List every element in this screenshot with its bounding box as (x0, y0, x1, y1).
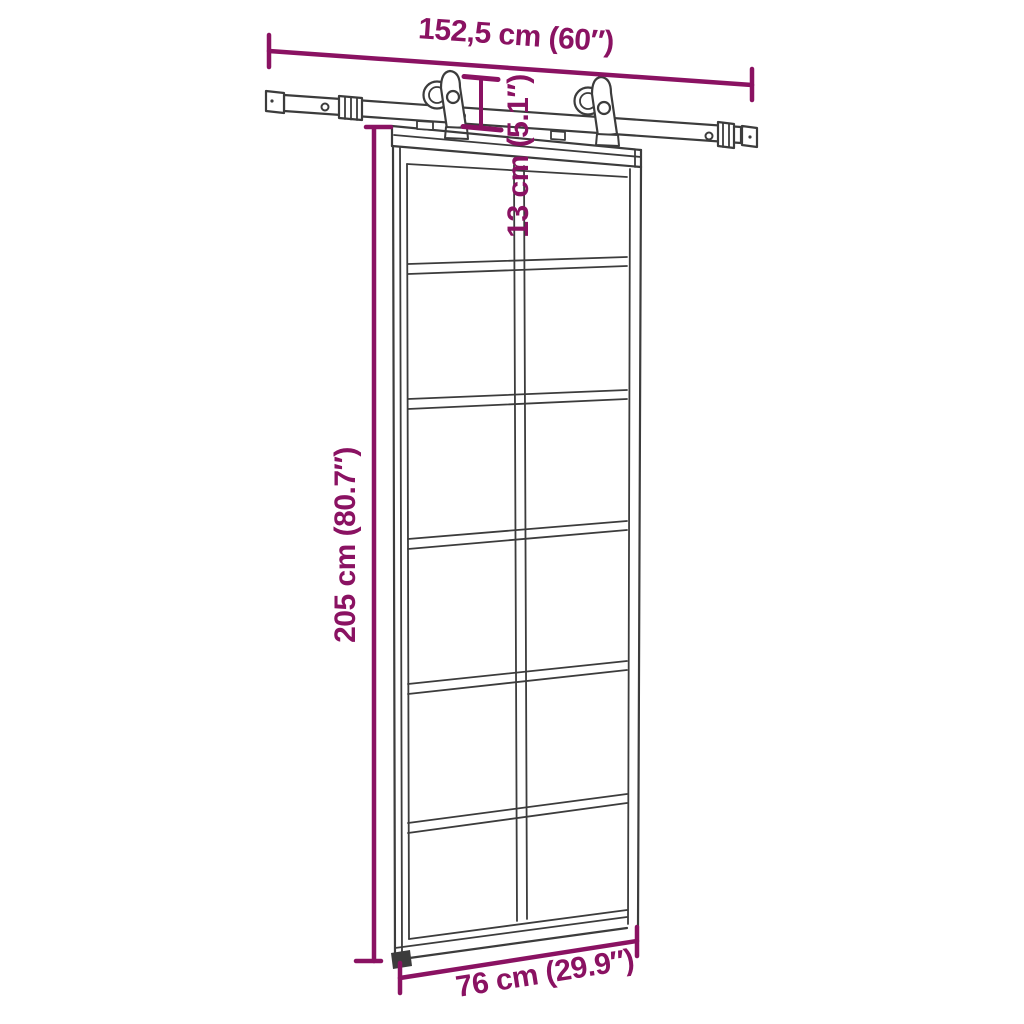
glass-panel-grid (407, 164, 627, 939)
strap-bolt-hole (598, 102, 610, 114)
rail-coupler-left (339, 96, 362, 120)
strap-bolt-hole (447, 91, 459, 103)
dimension-label-door-height: 205 cm (80.7″) (326, 425, 366, 665)
strap-foot (596, 134, 619, 146)
header-block (551, 131, 565, 140)
rail-coupler-right (718, 122, 734, 148)
roller-hanger-right (575, 77, 620, 146)
rail-screw-hole (322, 104, 329, 111)
rail-end-cap-left (266, 91, 284, 113)
rail-screw-hole (706, 133, 713, 140)
product-dimension-diagram: 152,5 cm (60″) 13 cm (5.1″) 205 cm (80.7… (0, 0, 1024, 1024)
header-block (417, 121, 433, 130)
dimension-label-top-offset: 13 cm (5.1″) (499, 51, 539, 261)
